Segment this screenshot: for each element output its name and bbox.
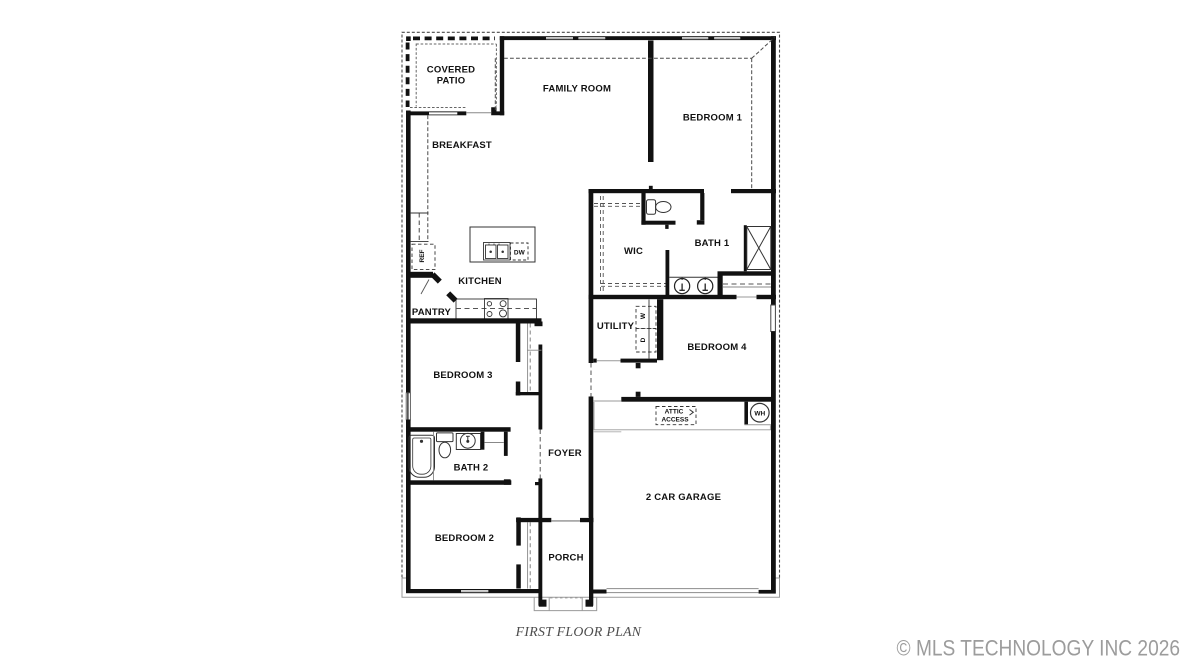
svg-text:ATTIC: ATTIC xyxy=(665,409,684,416)
svg-text:BEDROOM 4: BEDROOM 4 xyxy=(687,342,747,353)
svg-text:FAMILY ROOM: FAMILY ROOM xyxy=(543,84,611,95)
svg-text:FOYER: FOYER xyxy=(548,448,582,459)
svg-text:BEDROOM 1: BEDROOM 1 xyxy=(683,113,743,124)
svg-text:BATH 2: BATH 2 xyxy=(454,463,489,474)
svg-text:BREAKFAST: BREAKFAST xyxy=(432,140,492,151)
svg-text:WIC: WIC xyxy=(624,246,643,257)
svg-text:KITCHEN: KITCHEN xyxy=(458,276,502,287)
svg-text:© MLS TECHNOLOGY INC 2026: © MLS TECHNOLOGY INC 2026 xyxy=(897,636,1180,661)
svg-text:D: D xyxy=(640,337,647,342)
svg-text:W: W xyxy=(640,312,647,319)
svg-text:PANTRY: PANTRY xyxy=(412,307,452,318)
svg-text:WH: WH xyxy=(754,410,765,417)
svg-text:PATIO: PATIO xyxy=(437,76,466,87)
svg-text:BEDROOM 3: BEDROOM 3 xyxy=(433,370,492,381)
svg-text:PORCH: PORCH xyxy=(548,553,583,564)
svg-text:BATH 1: BATH 1 xyxy=(695,238,730,249)
svg-text:REF: REF xyxy=(419,249,426,262)
svg-text:FIRST FLOOR PLAN: FIRST FLOOR PLAN xyxy=(515,624,642,639)
svg-text:UTILITY: UTILITY xyxy=(597,321,635,332)
svg-text:BEDROOM 2: BEDROOM 2 xyxy=(435,533,494,544)
svg-text:ACCESS: ACCESS xyxy=(661,417,689,424)
svg-text:COVERED: COVERED xyxy=(427,65,475,76)
svg-text:DW: DW xyxy=(514,250,526,257)
svg-text:2 CAR GARAGE: 2 CAR GARAGE xyxy=(646,492,721,503)
